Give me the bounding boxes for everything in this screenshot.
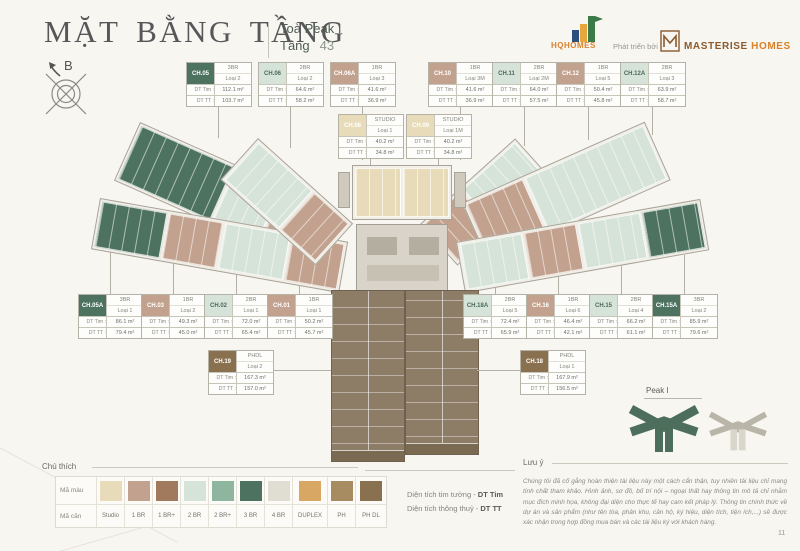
plan-units-ch16 xyxy=(523,224,583,279)
dt-tt-label: DT TT : xyxy=(590,328,617,338)
unit-area-tim-row: DT Tim : 86.1 m² xyxy=(79,317,143,328)
unit-area-tim-row: DT Tim : 40.2 m² xyxy=(339,137,403,148)
plan-stair-left xyxy=(338,172,350,208)
legend-title: Chú thích xyxy=(42,462,76,471)
unit-type: PHDL xyxy=(237,351,273,362)
dt-tim-label: DT Tim : xyxy=(590,317,617,327)
dt-tt-label: DT TT : xyxy=(621,96,648,106)
unit-variant: Loại 2 xyxy=(287,74,323,85)
dt-tt-value: 58.7 m² xyxy=(648,96,685,106)
unit-code: CH.08 xyxy=(339,115,367,137)
dt-tim-label: DT Tim : xyxy=(209,373,236,383)
plan-units-ch03 xyxy=(162,213,223,268)
dt-tim-label: DT Tim : xyxy=(205,317,232,327)
dt-tim-value: 63.9 m² xyxy=(648,85,685,95)
dt-tim-label: DT Tim : xyxy=(187,85,214,95)
masterise-wordmark: MASTERISE HOMES xyxy=(684,41,791,52)
dt-tt-value: 65.9 m² xyxy=(491,328,528,338)
leader-line xyxy=(236,275,237,294)
unit-variant: Loại 2M xyxy=(521,74,557,85)
unit-code: CH.16 xyxy=(527,295,555,317)
plan-lobby xyxy=(367,265,439,281)
area-key: Diện tích tim tường - DT Tim Diện tích t… xyxy=(407,488,503,515)
unit-area-tim-row: DT Tim : 64.6 m² xyxy=(259,85,323,96)
unit-variant: Loại 2 xyxy=(215,74,251,85)
peak-key-underline xyxy=(644,398,702,399)
dt-tt-value: 42.1 m² xyxy=(554,328,591,338)
dt-tim-label: DT Tim : xyxy=(621,85,648,95)
dt-tim-value: 46.4 m² xyxy=(554,317,591,327)
plan-studios xyxy=(352,165,452,220)
unit-type: 2BR xyxy=(649,63,685,74)
legend-swatch xyxy=(328,477,355,504)
compass-north-letter: B xyxy=(64,58,73,73)
unit-code: CH.06 xyxy=(259,63,287,85)
masterise-icon xyxy=(660,30,680,52)
dt-tim-value: 41.6 m² xyxy=(456,85,493,95)
legend-row-labels: Mã màu Mã căn xyxy=(56,477,96,527)
floor-word: Tầng xyxy=(280,38,310,53)
compass-icon: B xyxy=(34,54,98,118)
unit-area-tim-row: DT Tim : 167.3 m² xyxy=(209,373,273,384)
dt-tim-label: DT Tim : xyxy=(142,317,169,327)
unit-code: CH.01 xyxy=(268,295,296,317)
unit-variant: Loại 3 xyxy=(649,74,685,85)
unit-code: CH.11 xyxy=(493,63,521,85)
leader-line xyxy=(110,252,111,294)
page-number: 11 xyxy=(778,530,785,537)
unit-code: CH.05A xyxy=(79,295,107,317)
unit-area-tim-row: DT Tim : 41.6 m² xyxy=(331,85,395,96)
dt-tim-label: DT Tim : xyxy=(527,317,554,327)
dt-tt-value: 65.4 m² xyxy=(232,328,269,338)
unit-info-card: CH.02 2BR Loại 1 DT Tim : 72.0 m² DT TT … xyxy=(204,294,270,339)
legend-swatch xyxy=(97,477,124,504)
dt-tim-value: 50.2 m² xyxy=(295,317,332,327)
unit-area-tim-row: DT Tim : 66.2 m² xyxy=(590,317,654,328)
plan-core xyxy=(356,224,448,294)
peak-key-label: Peak I xyxy=(646,386,669,395)
leader-line xyxy=(299,286,300,294)
legend-unit-row-label: Mã căn xyxy=(56,504,96,527)
floor-number: 43 xyxy=(320,38,334,53)
plan-lift-bank xyxy=(409,237,439,255)
unit-area-tim-row: DT Tim : 64.0 m² xyxy=(493,85,557,96)
dt-tim-value: 50.4 m² xyxy=(584,85,621,95)
legend-type-label: DUPLEX xyxy=(293,504,327,527)
dt-tt-value: 45.7 m² xyxy=(295,328,332,338)
developed-by-text: Phát triển bởi xyxy=(613,42,658,51)
unit-variant: Loại 4 xyxy=(618,306,654,317)
unit-area-tt-row: DT TT : 45.8 m² xyxy=(557,96,621,106)
legend-color-row-label: Mã màu xyxy=(56,477,96,504)
unit-info-card: CH.05 3BR Loại 2 DT Tim : 112.1 m² DT TT… xyxy=(186,62,252,107)
dt-tt-label: DT TT : xyxy=(331,96,358,106)
dt-tt-value: 61.1 m² xyxy=(617,328,654,338)
legend-table: Mã màu Mã căn Studio 1 BR 1 BR+ 2 BR 2 B… xyxy=(55,476,387,528)
dt-tt-label: DT TT : xyxy=(407,148,434,158)
unit-area-tt-row: DT TT : 57.5 m² xyxy=(493,96,557,106)
dt-tt-value: 156.5 m² xyxy=(548,384,585,394)
legend-swatch xyxy=(125,477,152,504)
unit-area-tt-row: DT TT : 157.0 m² xyxy=(209,384,273,394)
unit-variant: Loại 1 xyxy=(367,126,403,137)
dt-tim-label: DT Tim : xyxy=(521,373,548,383)
dt-tt-label: DT TT : xyxy=(79,328,106,338)
unit-area-tt-row: DT TT : 58.7 m² xyxy=(621,96,685,106)
unit-info-card: CH.01 1BR Loại 1 DT Tim : 50.2 m² DT TT … xyxy=(267,294,333,339)
plan-units-ch15a xyxy=(642,202,706,257)
unit-area-tt-row: DT TT : 65.4 m² xyxy=(205,328,269,338)
unit-variant: Loại 1 xyxy=(233,306,269,317)
unit-info-card: CH.03 1BR Loại 2 DT Tim : 49.3 m² DT TT … xyxy=(141,294,207,339)
legend-type-label: 1 BR xyxy=(125,504,152,527)
unit-type: PHDL xyxy=(549,351,585,362)
unit-code: CH.05 xyxy=(187,63,215,85)
dt-tim-label: DT Tim : xyxy=(331,85,358,95)
floor-label: Tầng43 xyxy=(280,38,334,53)
dt-tt-value: 79.4 m² xyxy=(106,328,143,338)
unit-info-card: CH.06 2BR Loại 2 DT Tim : 64.6 m² DT TT … xyxy=(258,62,324,107)
unit-code: CH.09 xyxy=(407,115,435,137)
unit-area-tim-row: DT Tim : 50.2 m² xyxy=(268,317,332,328)
unit-code: CH.02 xyxy=(205,295,233,317)
unit-info-card: CH.11 2BR Loại 2M DT Tim : 64.0 m² DT TT… xyxy=(492,62,558,107)
unit-area-tt-row: DT TT : 79.6 m² xyxy=(653,328,717,338)
leader-line xyxy=(621,266,622,294)
plan-tower-ch19 xyxy=(331,290,405,462)
legend-swatch xyxy=(209,477,236,504)
legend-swatch xyxy=(181,477,208,504)
tower-name: Toà Peak I xyxy=(280,21,341,36)
dt-tim-value: 112.1 m² xyxy=(214,85,251,95)
unit-area-tt-row: DT TT : 45.7 m² xyxy=(268,328,332,338)
leader-line xyxy=(524,103,525,146)
dt-tim-value: 72.0 m² xyxy=(232,317,269,327)
dt-tt-value: 157.0 m² xyxy=(236,384,273,394)
unit-area-tim-row: DT Tim : 46.4 m² xyxy=(527,317,591,328)
legend-rule xyxy=(92,467,358,468)
dt-tt-value: 58.2 m² xyxy=(286,96,323,106)
leader-line xyxy=(272,370,331,371)
dt-tim-label: DT Tim : xyxy=(79,317,106,327)
unit-code: CH.03 xyxy=(142,295,170,317)
legend-type-label: 1 BR+ xyxy=(153,504,180,527)
unit-code: CH.06A xyxy=(331,63,359,85)
unit-code: CH.19 xyxy=(209,351,237,373)
unit-variant: Loại 3 xyxy=(359,74,395,85)
legend-type-label: Studio xyxy=(97,504,124,527)
unit-area-tt-row: DT TT : 65.9 m² xyxy=(464,328,528,338)
unit-type: 1BR xyxy=(170,295,206,306)
unit-area-tt-row: DT TT : 61.1 m² xyxy=(590,328,654,338)
dt-tt-label: DT TT : xyxy=(268,328,295,338)
dt-tt-label: DT TT : xyxy=(259,96,286,106)
unit-area-tt-row: DT TT : 45.0 m² xyxy=(142,328,206,338)
unit-info-card: CH.15A 3BR Loại 2 DT Tim : 85.9 m² DT TT… xyxy=(652,294,718,339)
dt-tt-label: DT TT : xyxy=(429,96,456,106)
dt-tim-label: DT Tim : xyxy=(493,85,520,95)
unit-type: 3BR xyxy=(107,295,143,306)
legend-swatch xyxy=(293,477,327,504)
unit-variant: Loại 1M xyxy=(435,126,471,137)
unit-info-card: CH.06A 1BR Loại 3 DT Tim : 41.6 m² DT TT… xyxy=(330,62,396,107)
unit-type: 2BR xyxy=(492,295,528,306)
unit-type: 2BR xyxy=(287,63,323,74)
dt-tt-label: DT TT : xyxy=(464,328,491,338)
unit-type: 1BR xyxy=(359,63,395,74)
plan-tower-wall xyxy=(368,291,369,461)
dt-tim-label: DT Tim : xyxy=(339,137,366,147)
dt-tt-value: 45.8 m² xyxy=(584,96,621,106)
unit-type: 3BR xyxy=(681,295,717,306)
dt-tim-value: 167.3 m² xyxy=(236,373,273,383)
unit-code: CH.15A xyxy=(653,295,681,317)
area-key-rule xyxy=(365,470,515,471)
unit-variant: Loại 2 xyxy=(681,306,717,317)
unit-type: 3BR xyxy=(215,63,251,74)
unit-variant: Loại 2 xyxy=(170,306,206,317)
unit-variant: Loại 3M xyxy=(457,74,493,85)
dt-tim-label: DT Tim : xyxy=(557,85,584,95)
unit-area-tim-row: DT Tim : 50.4 m² xyxy=(557,85,621,96)
unit-area-tim-row: DT Tim : 112.1 m² xyxy=(187,85,251,96)
unit-type: 2BR xyxy=(233,295,269,306)
unit-type: 2BR xyxy=(521,63,557,74)
dt-tim-label: DT Tim : xyxy=(407,137,434,147)
plan-units-ch15 xyxy=(578,213,648,269)
plan-lift-bank xyxy=(367,237,397,255)
unit-type: 2BR xyxy=(618,295,654,306)
plan-units-ch18a xyxy=(459,234,529,290)
unit-area-tim-row: DT Tim : 40.2 m² xyxy=(407,137,471,148)
dt-tt-value: 103.7 m² xyxy=(214,96,251,106)
unit-area-tt-row: DT TT : 36.9 m² xyxy=(331,96,395,106)
unit-info-card: CH.18A 2BR Loại 5 DT Tim : 72.4 m² DT TT… xyxy=(463,294,529,339)
leader-line xyxy=(652,103,653,135)
plan-tower-balcony xyxy=(406,443,478,454)
dt-tim-value: 49.3 m² xyxy=(169,317,206,327)
dt-tim-value: 66.2 m² xyxy=(617,317,654,327)
unit-area-tim-row: DT Tim : 49.3 m² xyxy=(142,317,206,328)
dt-tim-value: 64.0 m² xyxy=(520,85,557,95)
unit-info-card: CH.19 PHDL Loại 2 DT Tim : 167.3 m² DT T… xyxy=(208,350,274,395)
unit-variant: Loại 1 xyxy=(296,306,332,317)
unit-area-tim-row: DT Tim : 63.9 m² xyxy=(621,85,685,96)
unit-info-card: CH.05A 3BR Loại 1 DT Tim : 86.1 m² DT TT… xyxy=(78,294,144,339)
unit-area-tt-row: DT TT : 79.4 m² xyxy=(79,328,143,338)
note-body: Chúng tôi đã cố gắng hoàn thiện tài liệu… xyxy=(523,477,787,528)
leader-line xyxy=(558,277,559,294)
unit-area-tt-row: DT TT : 156.5 m² xyxy=(521,384,585,394)
legend-type-label: 4 BR xyxy=(265,504,292,527)
unit-code: CH.18 xyxy=(521,351,549,373)
unit-area-tt-row: DT TT : 34.8 m² xyxy=(407,148,471,158)
unit-variant: Loại 6 xyxy=(555,306,591,317)
unit-code: CH.12A xyxy=(621,63,649,85)
unit-info-card: CH.12A 2BR Loại 3 DT Tim : 63.9 m² DT TT… xyxy=(620,62,686,107)
note-rule xyxy=(552,463,788,464)
unit-area-tt-row: DT TT : 58.2 m² xyxy=(259,96,323,106)
dt-tim-value: 64.6 m² xyxy=(286,85,323,95)
dt-tt-value: 36.9 m² xyxy=(456,96,493,106)
dt-tim-value: 41.6 m² xyxy=(358,85,395,95)
dt-tt-label: DT TT : xyxy=(493,96,520,106)
unit-code: CH.15 xyxy=(590,295,618,317)
legend-type-label: 2 BR+ xyxy=(209,504,236,527)
dt-tt-value: 34.8 m² xyxy=(366,148,403,158)
unit-code: CH.18A xyxy=(464,295,492,317)
dt-tt-value: 57.5 m² xyxy=(520,96,557,106)
dt-tt-label: DT TT : xyxy=(653,328,680,338)
dt-tt-label: DT TT : xyxy=(187,96,214,106)
legend-type-label: PH DL xyxy=(356,504,386,527)
unit-area-tim-row: DT Tim : 72.0 m² xyxy=(205,317,269,328)
unit-variant: Loại 1 xyxy=(549,362,585,373)
header-divider xyxy=(268,22,269,58)
floor-plan-page: MẶT BẰNG TẦNG Toà Peak I Tầng43 HQHOMES … xyxy=(0,0,800,551)
area-key-tim: Diện tích tim tường - DT Tim xyxy=(407,488,503,502)
dt-tim-value: 72.4 m² xyxy=(491,317,528,327)
unit-area-tt-row: DT TT : 42.1 m² xyxy=(527,328,591,338)
hqhomes-wordmark: HQHOMES xyxy=(551,41,596,50)
dt-tim-value: 86.1 m² xyxy=(106,317,143,327)
dt-tt-label: DT TT : xyxy=(521,384,548,394)
dt-tt-label: DT TT : xyxy=(557,96,584,106)
unit-variant: Loại 5 xyxy=(492,306,528,317)
unit-area-tt-row: DT TT : 34.8 m² xyxy=(339,148,403,158)
dt-tim-value: 40.2 m² xyxy=(366,137,403,147)
unit-area-tt-row: DT TT : 36.9 m² xyxy=(429,96,493,106)
unit-variant: Loại 1 xyxy=(107,306,143,317)
plan-tower-wall xyxy=(442,291,443,454)
unit-info-card: CH.12 1BR Loại 5 DT Tim : 50.4 m² DT TT … xyxy=(556,62,622,107)
legend-type-label: PH xyxy=(328,504,355,527)
leader-line xyxy=(477,370,520,371)
dt-tt-label: DT TT : xyxy=(339,148,366,158)
dt-tt-label: DT TT : xyxy=(205,328,232,338)
dt-tim-label: DT Tim : xyxy=(429,85,456,95)
leader-line xyxy=(684,255,685,294)
leader-line xyxy=(218,103,219,138)
unit-info-card: CH.10 1BR Loại 3M DT Tim : 41.6 m² DT TT… xyxy=(428,62,494,107)
dt-tim-label: DT Tim : xyxy=(464,317,491,327)
dt-tt-label: DT TT : xyxy=(142,328,169,338)
unit-type: 1BR xyxy=(555,295,591,306)
legend-type-label: 2 BR xyxy=(181,504,208,527)
dt-tim-value: 85.9 m² xyxy=(680,317,717,327)
unit-info-card: CH.15 2BR Loại 4 DT Tim : 66.2 m² DT TT … xyxy=(589,294,655,339)
dt-tt-label: DT TT : xyxy=(209,384,236,394)
plan-units-ch09 xyxy=(403,168,449,217)
unit-code: CH.12 xyxy=(557,63,585,85)
dt-tt-label: DT TT : xyxy=(527,328,554,338)
legend-swatch xyxy=(356,477,386,504)
dt-tim-value: 167.9 m² xyxy=(548,373,585,383)
dt-tt-value: 34.8 m² xyxy=(434,148,471,158)
unit-type: STUDIO xyxy=(435,115,471,126)
area-key-tt: Diện tích thông thuỷ - DT TT xyxy=(407,502,503,516)
dt-tt-value: 36.9 m² xyxy=(358,96,395,106)
plan-units-ch08 xyxy=(355,168,401,217)
leader-line xyxy=(588,103,589,140)
dt-tt-value: 79.6 m² xyxy=(680,328,717,338)
dt-tim-label: DT Tim : xyxy=(259,85,286,95)
peak-key-icon-inactive xyxy=(706,408,770,454)
unit-area-tim-row: DT Tim : 41.6 m² xyxy=(429,85,493,96)
unit-variant: Loại 2 xyxy=(237,362,273,373)
legend-type-label: 3 BR xyxy=(237,504,264,527)
dt-tim-value: 40.2 m² xyxy=(434,137,471,147)
note-title: Lưu ý xyxy=(523,458,543,467)
plan-units-ch05a xyxy=(94,201,167,258)
leader-line xyxy=(173,264,174,294)
unit-area-tt-row: DT TT : 103.7 m² xyxy=(187,96,251,106)
dt-tim-label: DT Tim : xyxy=(268,317,295,327)
unit-info-card: CH.09 STUDIO Loại 1M DT Tim : 40.2 m² DT… xyxy=(406,114,472,159)
unit-info-card: CH.08 STUDIO Loại 1 DT Tim : 40.2 m² DT … xyxy=(338,114,404,159)
unit-type: 1BR xyxy=(296,295,332,306)
legend-swatch xyxy=(153,477,180,504)
unit-area-tim-row: DT Tim : 85.9 m² xyxy=(653,317,717,328)
legend-swatch xyxy=(265,477,292,504)
unit-info-card: CH.16 1BR Loại 6 DT Tim : 46.4 m² DT TT … xyxy=(526,294,592,339)
unit-area-tim-row: DT Tim : 72.4 m² xyxy=(464,317,528,328)
unit-type: STUDIO xyxy=(367,115,403,126)
plan-tower-balcony xyxy=(332,450,404,461)
legend-swatch xyxy=(237,477,264,504)
unit-type: 1BR xyxy=(585,63,621,74)
plan-stair-right xyxy=(454,172,466,208)
unit-code: CH.10 xyxy=(429,63,457,85)
unit-area-tim-row: DT Tim : 167.9 m² xyxy=(521,373,585,384)
unit-info-card: CH.18 PHDL Loại 1 DT Tim : 167.9 m² DT T… xyxy=(520,350,586,395)
unit-variant: Loại 5 xyxy=(585,74,621,85)
dt-tt-value: 45.0 m² xyxy=(169,328,206,338)
leader-line xyxy=(290,103,291,148)
dt-tim-label: DT Tim : xyxy=(653,317,680,327)
unit-type: 1BR xyxy=(457,63,493,74)
peak-key-icon-active xyxy=(626,402,702,456)
